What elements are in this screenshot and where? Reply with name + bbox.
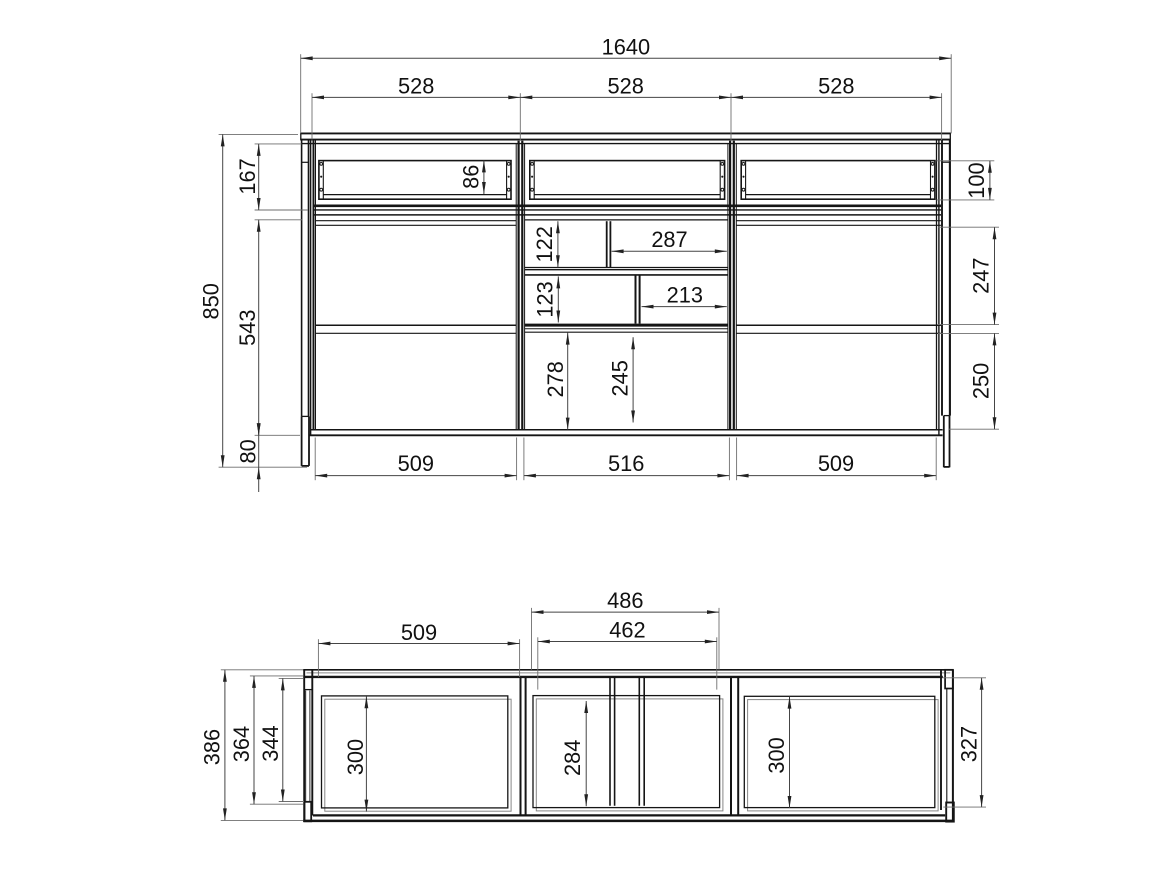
svg-text:247: 247 [969, 258, 994, 294]
svg-text:278: 278 [543, 361, 568, 397]
svg-text:528: 528 [608, 73, 644, 98]
svg-text:245: 245 [607, 360, 632, 396]
svg-text:344: 344 [258, 725, 283, 761]
svg-text:528: 528 [818, 73, 854, 98]
svg-text:1640: 1640 [602, 34, 651, 59]
svg-text:509: 509 [401, 620, 437, 645]
svg-text:213: 213 [667, 283, 703, 308]
svg-text:327: 327 [956, 726, 981, 762]
svg-text:364: 364 [229, 726, 254, 762]
svg-text:284: 284 [560, 740, 585, 776]
svg-text:80: 80 [235, 439, 260, 463]
svg-text:123: 123 [533, 281, 558, 317]
svg-text:300: 300 [764, 737, 789, 773]
svg-text:509: 509 [398, 451, 434, 476]
svg-text:250: 250 [969, 363, 994, 399]
svg-text:167: 167 [235, 158, 260, 194]
svg-text:486: 486 [607, 588, 643, 613]
svg-text:86: 86 [459, 165, 484, 189]
svg-text:122: 122 [532, 226, 557, 262]
svg-text:287: 287 [651, 227, 687, 252]
svg-text:516: 516 [608, 451, 644, 476]
svg-text:386: 386 [200, 729, 225, 765]
svg-text:300: 300 [343, 739, 368, 775]
svg-text:850: 850 [199, 283, 224, 319]
svg-text:100: 100 [964, 162, 989, 198]
svg-text:528: 528 [398, 73, 434, 98]
svg-text:462: 462 [609, 618, 645, 643]
svg-text:509: 509 [818, 451, 854, 476]
svg-text:543: 543 [235, 310, 260, 346]
